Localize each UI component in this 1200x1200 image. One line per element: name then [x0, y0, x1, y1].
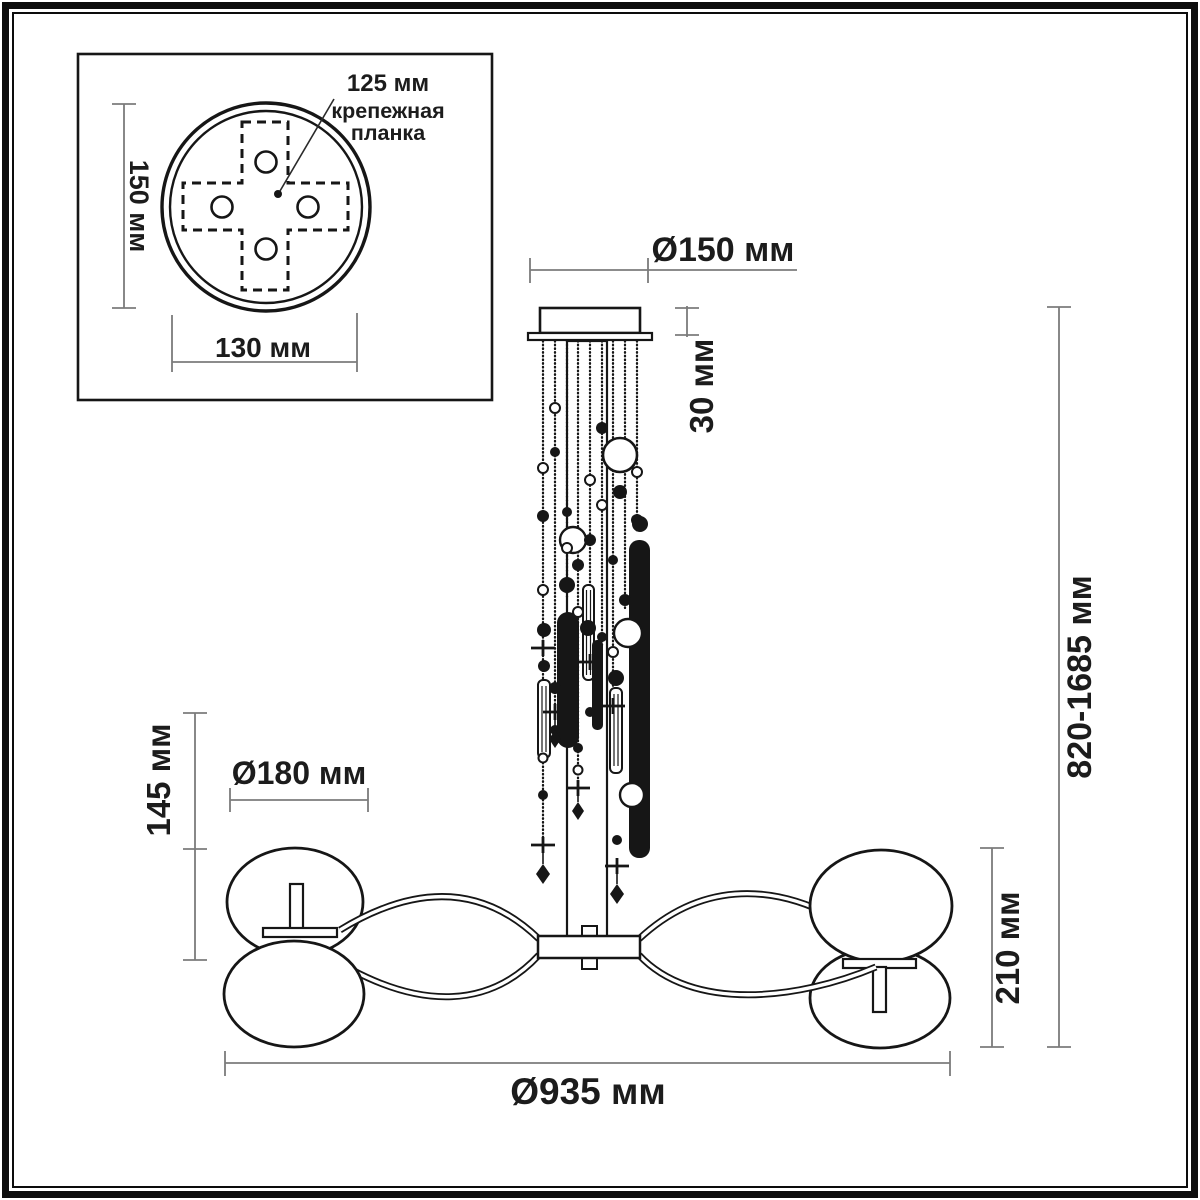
crystal-ring	[614, 619, 642, 647]
lamp-pin-right	[873, 967, 886, 1012]
shade-assembly-right	[639, 850, 952, 1048]
canopy-diameter-label: Ø150 мм	[652, 231, 795, 269]
crystal-ring	[620, 783, 644, 807]
crystal-ring	[603, 438, 637, 472]
mounting-hole-bottom	[256, 239, 277, 260]
glass-shade-lower-left	[224, 941, 364, 1047]
canopy-height-label: 30 мм	[683, 339, 720, 434]
technical-drawing-sheet: 150 мм 130 мм 125 мм крепежная планка	[0, 0, 1200, 1200]
dim-canopy-diameter: Ø150 мм	[530, 231, 797, 283]
dim-shade-diameter: Ø180 мм	[230, 755, 368, 812]
pendant-tube-black	[557, 612, 579, 748]
inset-width-label: 130 мм	[215, 332, 311, 363]
dim-overall-height: 820-1685 мм	[1047, 307, 1099, 1047]
canopy-plan-outer-circle	[162, 103, 370, 311]
pendant-tube-black	[592, 640, 603, 730]
pendant-tube-striped	[538, 680, 550, 758]
shade-diameter-label: Ø180 мм	[232, 755, 367, 791]
dim-body-height: 210 мм	[980, 848, 1026, 1047]
mount-plate-left	[263, 928, 337, 937]
dim-overall-diameter: Ø935 мм	[225, 1051, 950, 1112]
glass-shade-upper-right	[810, 850, 952, 962]
bracket-label-line1: крепежная	[331, 99, 444, 123]
dim-shade-height: 145 мм	[140, 713, 207, 960]
overall-height-label: 820-1685 мм	[1061, 575, 1099, 778]
pitch-label: 125 мм	[347, 70, 429, 97]
chandelier-side-view	[224, 308, 952, 1048]
shade-assembly-left	[224, 848, 539, 1047]
arm-left-lower	[352, 955, 539, 997]
overall-diameter-label: Ø935 мм	[510, 1071, 666, 1112]
central-hub	[538, 926, 640, 969]
arm-right-upper	[639, 894, 832, 939]
body-height-label: 210 мм	[989, 891, 1026, 1004]
inset-height-label: 150 мм	[124, 160, 154, 253]
arm-left-upper	[340, 897, 539, 939]
lamp-pin-left	[290, 884, 303, 930]
mounting-hole-left	[212, 197, 233, 218]
bracket-label-line2: планка	[351, 121, 426, 145]
dim-canopy-height: 30 мм	[675, 306, 720, 433]
mounting-inset: 150 мм 130 мм 125 мм крепежная планка	[78, 54, 492, 400]
shade-height-label: 145 мм	[140, 723, 177, 836]
ceiling-canopy	[528, 308, 652, 340]
pendant-tube-long	[629, 540, 650, 858]
chandelier-dimension-drawing: 150 мм 130 мм 125 мм крепежная планка	[0, 0, 1200, 1200]
mounting-hole-right	[298, 197, 319, 218]
mounting-hole-top	[256, 152, 277, 173]
